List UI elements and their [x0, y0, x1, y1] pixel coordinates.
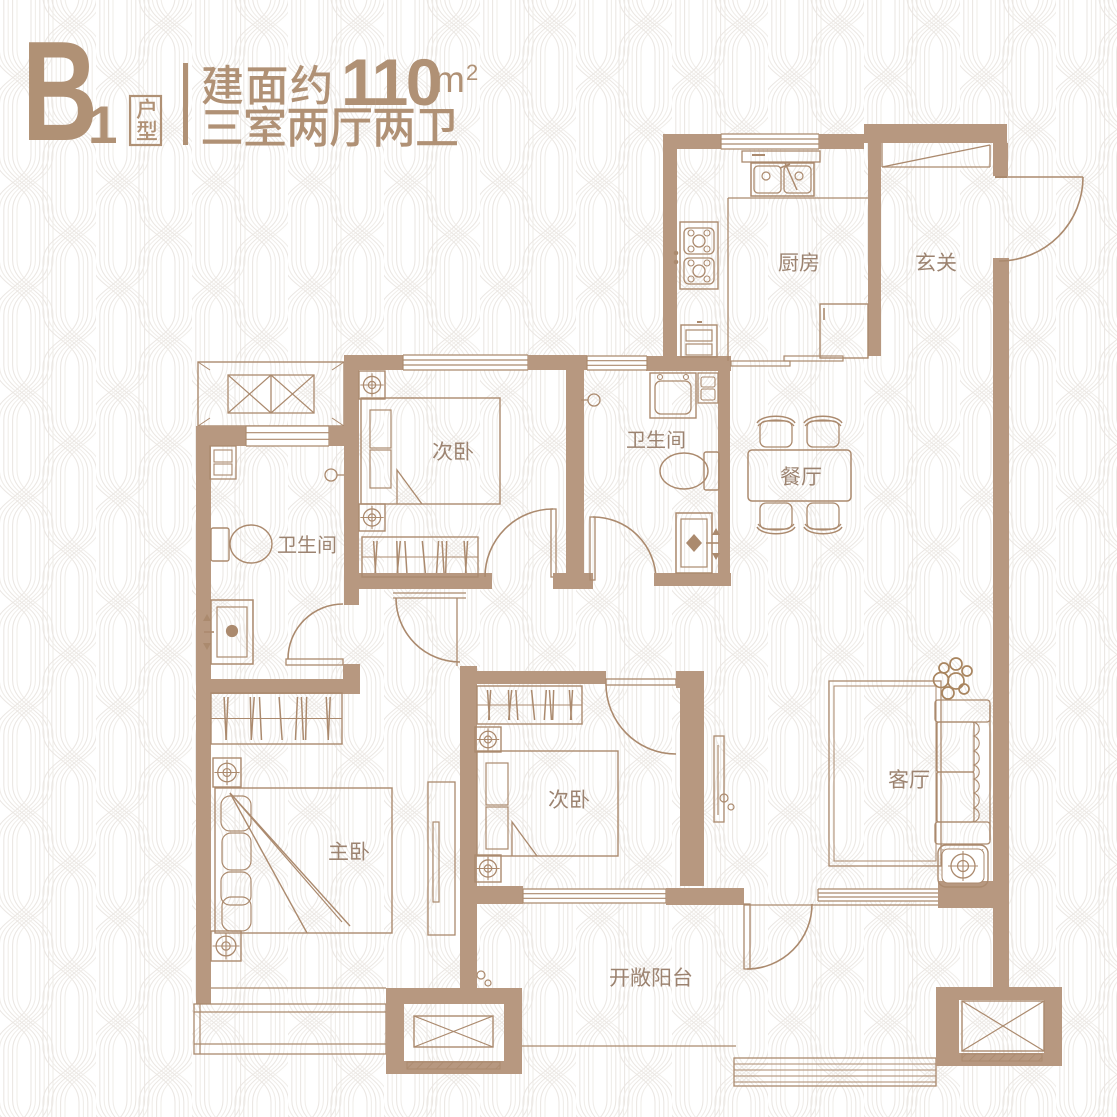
- svg-text:1: 1: [88, 96, 117, 155]
- svg-text:2: 2: [466, 60, 478, 85]
- svg-text:110: 110: [341, 45, 440, 119]
- svg-text:m: m: [434, 59, 465, 100]
- svg-text:B: B: [22, 13, 98, 171]
